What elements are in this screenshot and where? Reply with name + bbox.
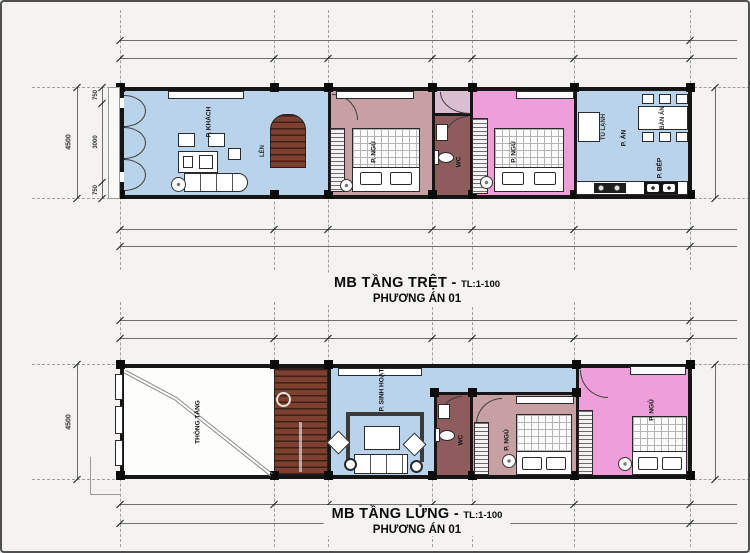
sofa [354,454,408,474]
toilet-bowl [438,152,454,163]
dining-chair [642,94,654,104]
column [428,83,437,92]
wardrobe [474,422,489,475]
column [468,388,477,397]
dimension-line [120,58,737,59]
dim-label-front: 750 [93,90,99,100]
column [428,471,437,480]
wash-basin [438,404,450,419]
porch-edge-line [90,494,120,495]
wardrobe [578,410,593,475]
wall-shelf [516,91,574,99]
interior-wall [470,395,473,475]
extension-line [694,479,750,480]
column [686,83,695,92]
porch-edge-line [90,457,91,495]
room-label-kitchen: P. BẾP [656,158,663,178]
plant-pot [340,179,353,192]
room-label-bedroom-middle: P. NGỦ [503,429,510,451]
interior-wall [574,91,577,195]
plan-title: MB TẦNG TRỆT [334,275,447,291]
pillow [638,457,658,470]
column [116,360,125,369]
column [324,360,333,369]
sofa [184,173,248,192]
dimension-line [120,40,737,41]
extension-line [694,87,750,88]
sink-basin [663,184,675,192]
column [270,360,279,369]
plan-subtitle: PHƯƠNG ÁN 01 [334,293,500,305]
armchair [178,133,195,147]
room-label-dining: P. ĂN [620,130,627,147]
dim-label-depth: 4500 [66,414,73,430]
sofa-back [346,412,424,416]
room-label-void: THÔNG TẦNG [194,400,201,444]
coffee-table [364,426,400,450]
plan-title-line: MB TẦNG TRỆT - TL:1-100 [334,274,500,292]
dim-label-depth: 4500 [66,134,73,150]
plan-title-line: MB TẦNG LỬNG - TL:1-100 [332,505,503,523]
column [324,471,333,480]
dining-table-label: BÀN ĂN [660,106,666,129]
room-label-bedroom-middle: P. NGỦ [510,141,517,163]
floor-lamp [410,460,423,473]
dining-chair [659,94,671,104]
sink-basin [647,184,659,192]
title-separator: - [451,275,456,291]
window [115,406,123,434]
interior-wall [432,91,435,195]
pillow [360,172,382,185]
table-item [199,155,213,169]
room-label-living: P. KHÁCH [205,107,212,138]
column [324,83,333,92]
front-porch [108,87,120,199]
dining-chair [676,94,688,104]
fridge-label: TỦ LẠNH [601,114,607,140]
extension-line [694,198,750,199]
dimension-line [120,320,737,321]
sofa-back [346,412,350,460]
dimension-line [120,338,737,339]
column [686,360,695,369]
dim-label-rear: 750 [93,185,99,195]
dimension-line [77,87,78,198]
pillow [662,457,682,470]
column [270,190,279,199]
room-label-family: P. SINH HOẠT [378,369,385,412]
column [468,83,477,92]
plant-pot [618,457,632,471]
column [430,388,439,397]
bed [352,128,420,168]
fridge [578,112,600,142]
extension-line [694,364,750,365]
wall-shelf [630,366,686,375]
tv-cabinet [168,91,244,99]
dining-chair [659,132,671,142]
stair-divider [299,422,302,472]
plan-scale: TL:1-100 [461,279,500,290]
plan-scale: TL:1-100 [463,510,502,521]
corridor [434,368,576,395]
dining-chair [676,132,688,142]
floor-plan-sheet: 4500 750 3000 750 P. KHÁ [0,0,750,553]
pillow [390,172,412,185]
dimension-line [120,246,737,247]
plan-subtitle: PHƯƠNG ÁN 01 [332,524,503,536]
pillow [522,457,542,470]
column [686,471,695,480]
wall-shelf [516,396,574,404]
plan-title-block-ground: MB TẦNG TRỆT - TL:1-100 PHƯƠNG ÁN 01 [326,274,508,305]
window [115,440,123,466]
wash-basin [436,124,448,141]
bed [632,416,687,452]
wall-shelf [336,91,414,99]
room-label-bedroom-front: P. NGỦ [370,141,377,163]
plant-pot [480,176,493,189]
stove [594,183,626,193]
room-label-wc: WC [457,435,464,446]
window [115,374,123,400]
plan-title-block-mezzanine: MB TẦNG LỬNG - TL:1-100 PHƯƠNG ÁN 01 [324,505,511,536]
stairs-up-label: LÊN [260,145,266,157]
dim-label-span: 3000 [93,135,99,148]
plan-title: MB TẦNG LỬNG [332,506,450,522]
pillow [546,457,566,470]
bed [516,414,572,452]
toilet-bowl [439,430,455,441]
pillow [534,172,556,185]
bed [494,128,564,168]
table-item [183,156,193,168]
dining-chair [642,132,654,142]
column [116,471,125,480]
sofa-back [420,412,424,462]
pillow [502,172,524,185]
column [270,83,279,92]
staircase [270,114,306,168]
column [572,360,581,369]
room-label-wc: WC [455,157,462,168]
plant-pot [171,177,186,192]
plant-pot [502,454,516,468]
side-table [228,148,241,160]
dimension-line [77,364,78,479]
dimension-line [715,87,716,198]
interior-wall [434,392,576,395]
floor-lamp [344,458,357,471]
dimension-line [120,229,737,230]
stair-newel [276,392,291,407]
interior-wall [328,368,331,475]
column [428,190,437,199]
dimension-line [715,364,716,479]
room-label-bedroom-rear: P. NGỦ [648,399,655,421]
